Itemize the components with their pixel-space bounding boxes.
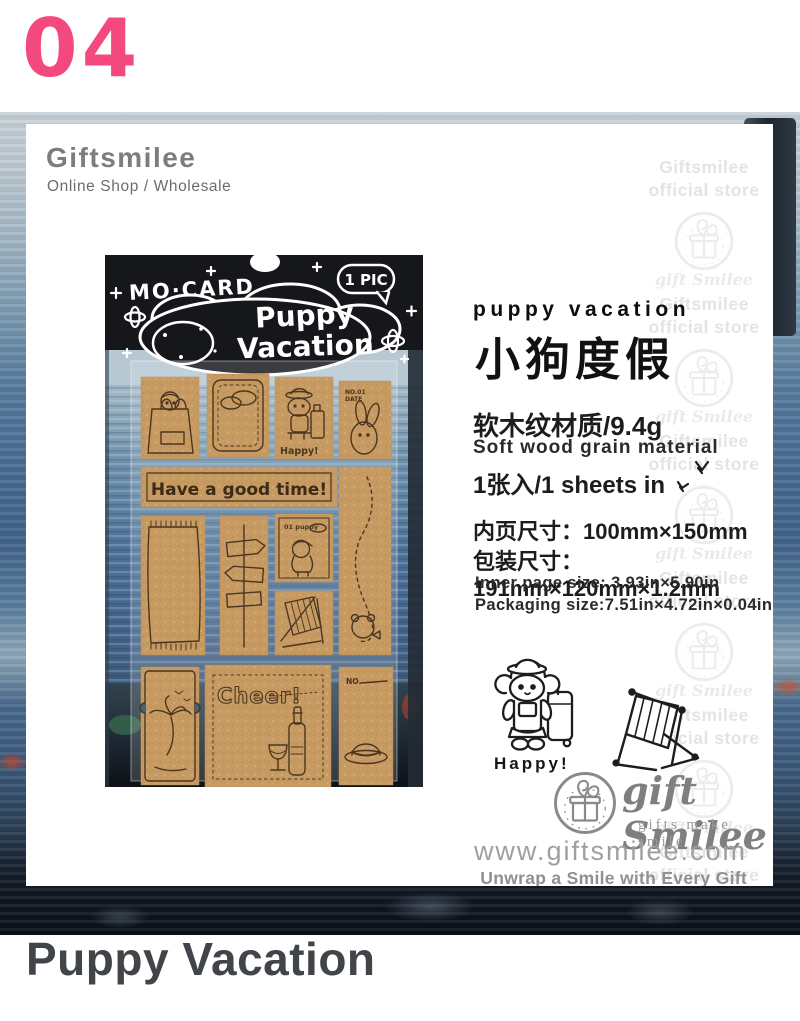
sheet-count: 1张入/1 sheets in bbox=[473, 465, 665, 500]
page-index-number: 04 bbox=[22, 2, 141, 95]
page-title: Puppy Vacation bbox=[26, 932, 376, 986]
material-en: Soft wood grain material bbox=[473, 437, 719, 459]
watermark-brand-script: gift Smilee bbox=[638, 270, 770, 289]
cork-sticker-pieces bbox=[141, 374, 393, 787]
deck-chair-illustration bbox=[606, 682, 704, 774]
puppy-illustration bbox=[486, 652, 586, 756]
cheer-text: Cheer! bbox=[217, 684, 302, 708]
package-badge-text: 1 PIC bbox=[344, 271, 387, 289]
stamp-no-text: NO.01 bbox=[345, 389, 366, 396]
package-title-line2: Vacation bbox=[237, 328, 375, 366]
watermark-unit: Giftsmilee official store gift Smilee bbox=[638, 156, 770, 293]
slogan: Unwrap a Smile with Every Gift bbox=[480, 868, 747, 886]
inner-size-zh: 内页尺寸：100mm×150mm bbox=[473, 514, 748, 546]
product-title-zh: 小狗度假 bbox=[475, 323, 675, 388]
banner-text: Have a good time! bbox=[151, 480, 327, 500]
stamp-date-text: DATE bbox=[345, 396, 362, 403]
tag-no-text: NO. bbox=[346, 677, 361, 686]
page: 04 Giftsmilee official store gift Smilee… bbox=[0, 0, 800, 1021]
cork-happy-text: Happy! bbox=[280, 446, 319, 457]
website-url: www.giftsmilee.com bbox=[474, 836, 747, 867]
watermark-gift-logo-icon: gift Smilee bbox=[638, 208, 770, 289]
package-size-zh: 包装尺寸：191mm×120mm×1.2mm bbox=[473, 544, 773, 602]
product-card: Giftsmilee official store gift Smilee Gi… bbox=[26, 124, 773, 886]
watermark-text: Giftsmilee official store bbox=[638, 156, 770, 202]
giftsmilee-logo-icon bbox=[550, 768, 620, 838]
brand-title: Giftsmilee bbox=[46, 142, 196, 174]
product-title-en: puppy vacation bbox=[473, 298, 690, 322]
product-photo: MO·CARD Puppy Vacation 1 PIC bbox=[105, 255, 423, 787]
birds-doodle-icon bbox=[674, 458, 716, 494]
brand-subtitle: Online Shop / Wholesale bbox=[47, 178, 231, 196]
inner-size-en: Inner page size: 3.93in×5.90in bbox=[475, 574, 719, 593]
package-size-en: Packaging size:7.51in×4.72in×0.04in bbox=[475, 596, 772, 615]
